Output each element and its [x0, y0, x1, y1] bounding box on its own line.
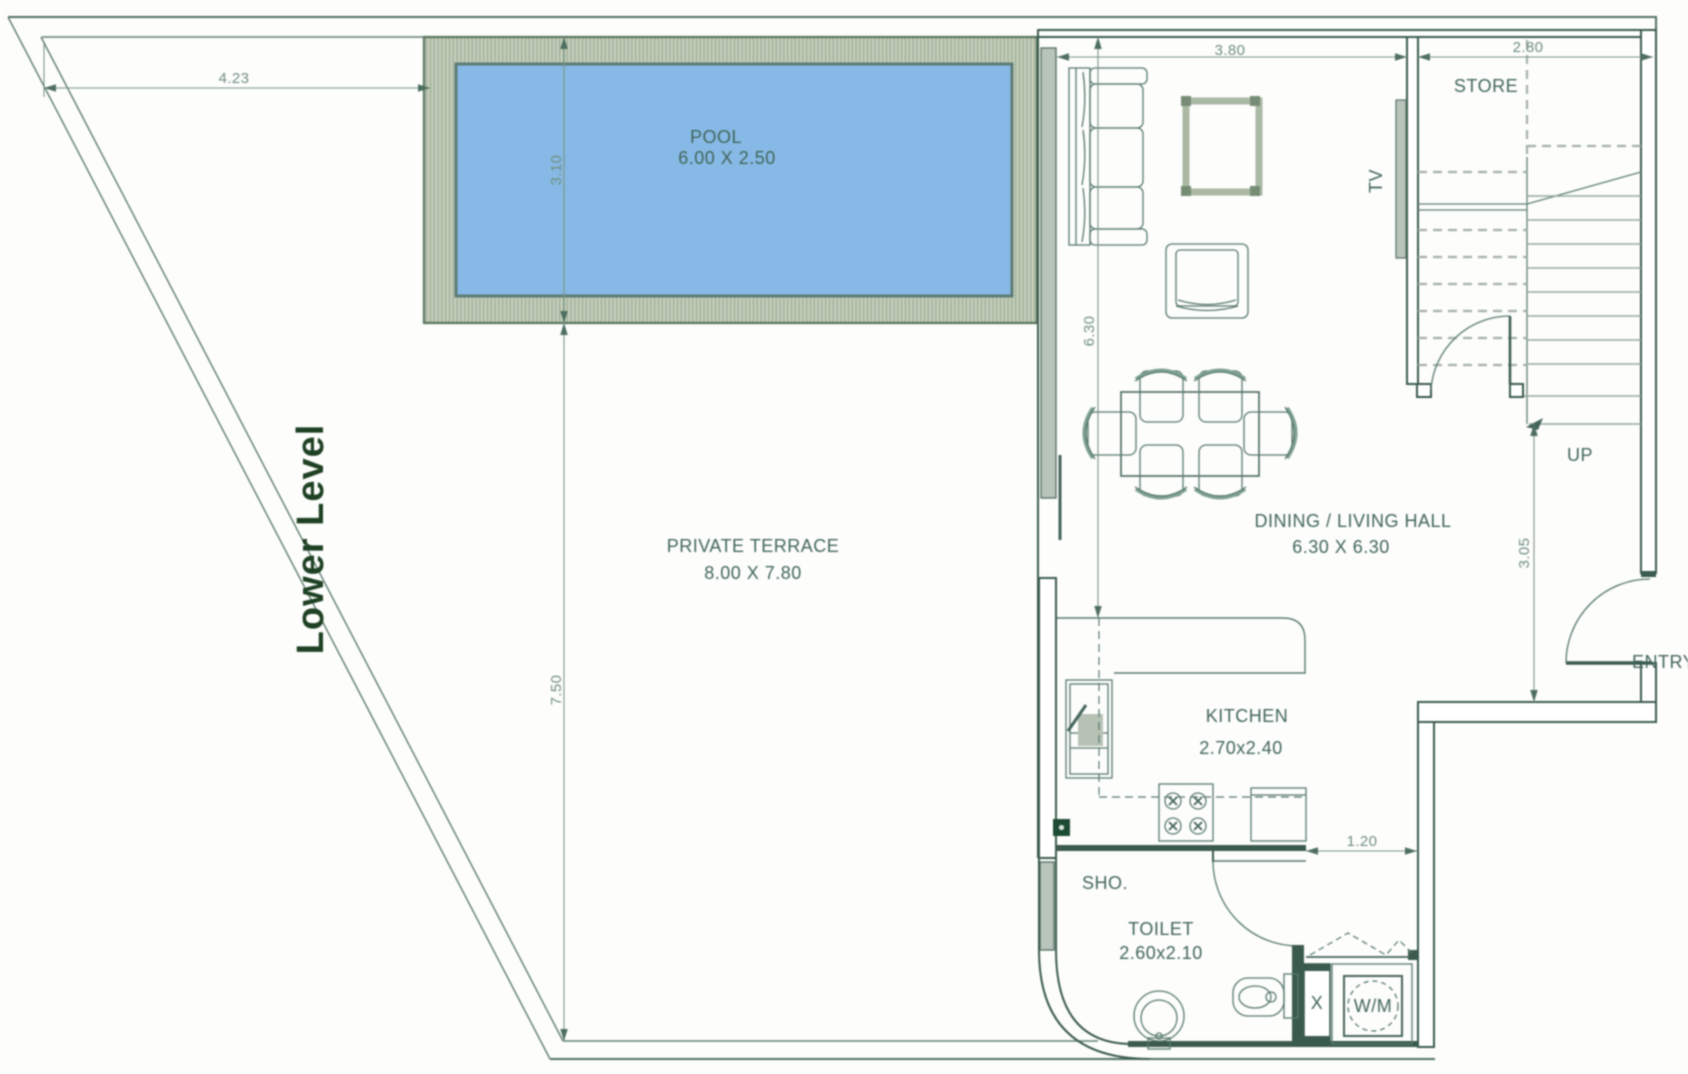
- svg-text:8.00 X 7.80: 8.00 X 7.80: [704, 563, 802, 583]
- svg-text:2.80: 2.80: [1513, 39, 1544, 56]
- svg-text:6.30 X 6.30: 6.30 X 6.30: [1292, 537, 1390, 557]
- svg-text:1.20: 1.20: [1347, 833, 1378, 850]
- svg-text:TV: TV: [1366, 169, 1386, 193]
- svg-text:4.23: 4.23: [219, 70, 250, 87]
- svg-text:KITCHEN: KITCHEN: [1206, 706, 1289, 726]
- svg-text:STORE: STORE: [1454, 76, 1518, 96]
- svg-text:PRIVATE TERRACE: PRIVATE TERRACE: [667, 536, 840, 556]
- svg-text:6.30: 6.30: [1081, 316, 1098, 347]
- svg-text:X: X: [1311, 993, 1324, 1013]
- svg-text:3.10: 3.10: [548, 155, 565, 186]
- svg-text:TOILET: TOILET: [1128, 919, 1194, 939]
- svg-text:7.50: 7.50: [548, 675, 565, 706]
- svg-text:3.05: 3.05: [1516, 538, 1533, 569]
- svg-text:2.70x2.40: 2.70x2.40: [1199, 738, 1283, 758]
- svg-text:6.00 X 2.50: 6.00 X 2.50: [678, 148, 776, 168]
- svg-text:Lower Level: Lower Level: [290, 424, 332, 655]
- svg-text:3.80: 3.80: [1215, 42, 1246, 59]
- svg-text:ENTRY: ENTRY: [1632, 652, 1688, 672]
- svg-text:SHO.: SHO.: [1082, 873, 1128, 893]
- svg-text:DINING / LIVING HALL: DINING / LIVING HALL: [1254, 511, 1451, 531]
- svg-text:W/M: W/M: [1354, 996, 1392, 1016]
- svg-text:2.60x2.10: 2.60x2.10: [1119, 943, 1203, 963]
- svg-text:POOL: POOL: [690, 127, 742, 147]
- svg-text:UP: UP: [1567, 445, 1593, 465]
